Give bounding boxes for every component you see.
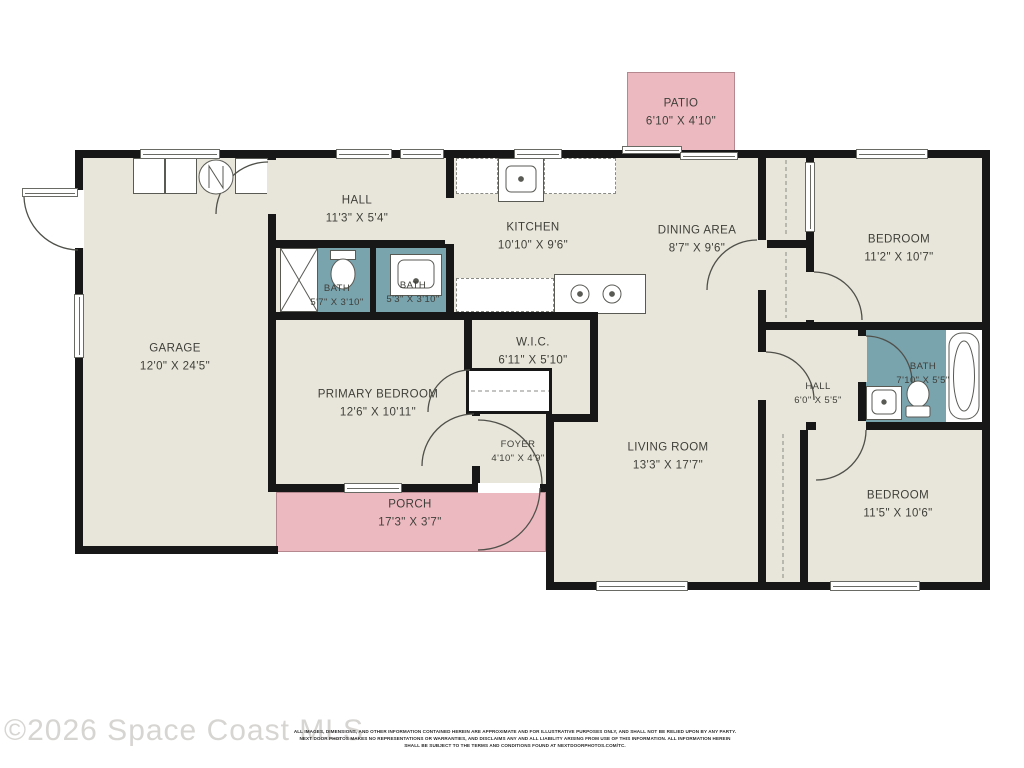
patio-slider-icon	[622, 146, 682, 154]
room-dims: 4'10" X 4'9"	[491, 452, 544, 466]
garage-top-window	[140, 149, 220, 159]
room-label-foyer: FOYER 4'10" X 4'9"	[491, 438, 544, 467]
room-label-bedroom-top: BEDROOM 11'2" X 10'7"	[864, 231, 933, 268]
primary-front-window	[344, 483, 402, 493]
room-name: DINING AREA	[658, 222, 737, 240]
wall-bedroom-left	[800, 430, 808, 590]
disclaimer-line-3: SHALL BE SUBJECT TO THE TERMS AND CONDIT…	[287, 743, 743, 750]
bedroom-top-door-opening	[805, 272, 815, 320]
wall-under-hall	[276, 240, 454, 248]
hall-top-window-2	[400, 149, 444, 159]
wall-baths-bottom	[276, 312, 454, 320]
room-label-bath-right: BATH 7'10" X 5'5"	[896, 360, 949, 389]
room-label-garage: GARAGE 12'0" X 24'5"	[140, 340, 210, 377]
garage-left-window	[74, 294, 84, 358]
disclaimer-line-1: ALL IMAGES, DIMENSIONS, AND OTHER INFORM…	[287, 729, 743, 736]
bedroom-bottom-window	[830, 581, 920, 591]
garage-side-door-leaf	[22, 188, 78, 197]
wall-bath-kitchen	[446, 240, 454, 320]
room-dims: 11'3" X 5'4"	[326, 210, 389, 228]
storage-box-icon	[133, 158, 165, 194]
room-dims: 6'11" X 5'10"	[498, 352, 567, 370]
hall-kitchen-opening	[445, 198, 455, 244]
room-dims: 11'2" X 10'7"	[864, 249, 933, 267]
room-dims: 5'3" X 3'10"	[386, 293, 439, 307]
kitchen-counter	[456, 278, 554, 312]
patio-slider-icon	[680, 152, 738, 160]
room-name: HALL	[326, 192, 389, 210]
room-name: PRIMARY BEDROOM	[318, 386, 439, 404]
room-name: BATH	[386, 279, 439, 293]
dining-door-opening	[757, 240, 767, 290]
room-name: GARAGE	[140, 340, 210, 358]
room-dims: 11'5" X 10'6"	[863, 505, 932, 523]
room-label-hall-top: HALL 11'3" X 5'4"	[326, 192, 389, 229]
room-dims: 6'10" X 4'10"	[646, 113, 716, 131]
tub-alcove	[946, 330, 982, 422]
storage-box-icon	[165, 158, 197, 194]
stove-icon	[554, 274, 646, 314]
room-name: BEDROOM	[863, 487, 932, 505]
room-label-porch: PORCH 17'3" X 3'7"	[378, 496, 441, 533]
kitchen-counter	[456, 158, 498, 194]
room-dims: 10'10" X 9'6"	[498, 237, 568, 255]
room-dims: 12'0" X 24'5"	[140, 358, 210, 376]
bath-right-door-opening	[857, 336, 867, 382]
living-bottom-window	[596, 581, 688, 591]
foyer-closet	[466, 368, 552, 414]
storage-box-icon	[235, 158, 268, 194]
wall-foyer-right	[546, 414, 554, 492]
room-dims: 7'10" X 5'5"	[896, 374, 949, 388]
room-label-living: LIVING ROOM 13'3" X 17'7"	[627, 439, 708, 476]
hall-right-door-opening	[757, 352, 767, 400]
floor-plan-canvas: PATIO 6'10" X 4'10" GARAGE 12'0" X 24'5"…	[0, 0, 1024, 768]
room-label-primary: PRIMARY BEDROOM 12'6" X 10'11"	[318, 386, 439, 423]
room-label-wic: W.I.C. 6'11" X 5'10"	[498, 334, 567, 371]
room-dims: 13'3" X 17'7"	[627, 457, 708, 475]
room-name: KITCHEN	[498, 219, 568, 237]
wall-garage-bottom	[75, 546, 278, 554]
room-label-bath-small: BATH 5'7" X 3'10"	[310, 282, 363, 311]
room-label-hall-right: HALL 6'0" X 5'5"	[794, 380, 842, 409]
hall-top-window	[336, 149, 392, 159]
room-dims: 6'0" X 5'5"	[794, 394, 842, 408]
room-dims: 17'3" X 3'7"	[378, 514, 441, 532]
garage-side-door-arc	[24, 197, 78, 250]
room-name: HALL	[794, 380, 842, 394]
room-label-kitchen: KITCHEN 10'10" X 9'6"	[498, 219, 568, 256]
kitchen-sink-icon	[498, 158, 544, 202]
room-name: BATH	[310, 282, 363, 296]
wall-wic-left	[464, 312, 472, 370]
wall-corridor-stub	[766, 240, 806, 248]
room-label-patio: PATIO 6'10" X 4'10"	[646, 95, 716, 132]
garage-hall-door-opening	[267, 160, 277, 214]
room-name: W.I.C.	[498, 334, 567, 352]
disclaimer-text: ALL IMAGES, DIMENSIONS, AND OTHER INFORM…	[287, 729, 743, 750]
wall-porch-right	[546, 484, 554, 590]
vanity-sink-icon	[866, 386, 902, 420]
garage-side-door-opening	[74, 190, 84, 248]
room-dims: 8'7" X 9'6"	[658, 240, 737, 258]
room-name: PORCH	[378, 496, 441, 514]
room-name: FOYER	[491, 438, 544, 452]
front-door-opening	[478, 483, 540, 493]
room-dims: 12'6" X 10'11"	[318, 404, 439, 422]
wall-wic-right	[590, 312, 598, 422]
room-name: BATH	[896, 360, 949, 374]
bedroom-top-window	[856, 149, 928, 159]
closet-slider-panel	[805, 162, 815, 232]
room-label-bath-center: BATH 5'3" X 3'10"	[386, 279, 439, 308]
kitchen-window	[514, 149, 562, 159]
wall-kitchen-bottom	[454, 312, 598, 320]
room-name: LIVING ROOM	[627, 439, 708, 457]
room-name: BEDROOM	[864, 231, 933, 249]
toilet-tank-icon	[330, 250, 356, 260]
wall-upper-separator	[758, 322, 990, 330]
wall-between-baths	[370, 248, 376, 318]
wall-exterior-right	[982, 150, 990, 590]
bedroom-bottom-door-opening	[816, 421, 866, 431]
primary-door-opening	[471, 416, 481, 466]
disclaimer-line-2: NEXT DOOR PHOTOS MAKES NO REPRESENTATION…	[287, 736, 743, 743]
room-dims: 5'7" X 3'10"	[310, 296, 363, 310]
floor-bottom-extension	[554, 546, 982, 582]
room-label-dining: DINING AREA 8'7" X 9'6"	[658, 222, 737, 259]
room-name: PATIO	[646, 95, 716, 113]
kitchen-counter	[544, 158, 616, 194]
room-label-bedroom-bottom: BEDROOM 11'5" X 10'6"	[863, 487, 932, 524]
